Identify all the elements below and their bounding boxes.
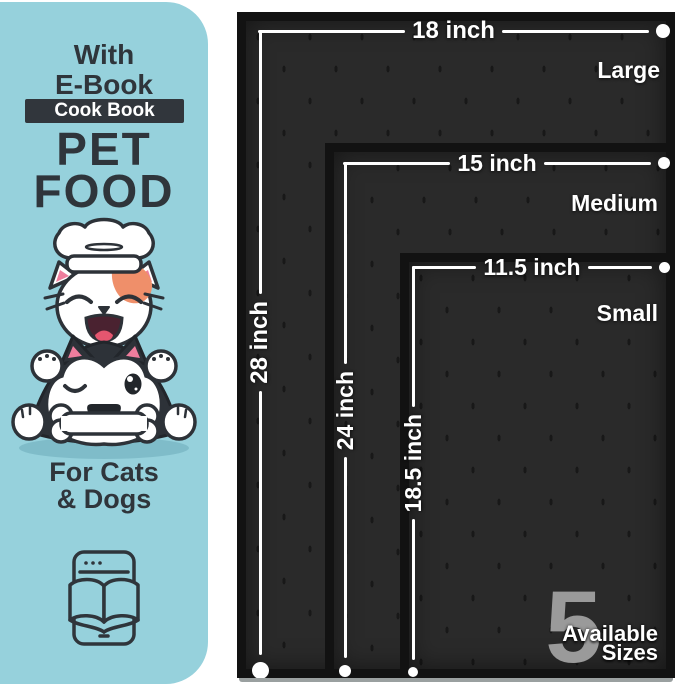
product-infographic: With E-Book Cook Book PET FOOD: [0, 0, 679, 688]
subtitle-line1: For Cats: [0, 459, 208, 486]
for-cats-dogs-text: For Cats & Dogs: [0, 459, 208, 513]
dim-height-large: 28 inch: [251, 30, 269, 679]
available-sizes-callout: 5 Available Sizes: [562, 624, 658, 662]
ebook-icon: [64, 548, 144, 648]
mat-small: 11.5 inch 18.5 inch Small 5 Available Si…: [400, 253, 675, 678]
dim-width-large: 18 inch: [258, 23, 670, 39]
size-label-medium: Medium: [571, 190, 658, 217]
ebook-eyebrow-text: With E-Book: [0, 40, 208, 100]
subtitle-line2: & Dogs: [0, 486, 208, 513]
title-line1: PET: [0, 128, 208, 170]
size-label-small: Small: [597, 300, 658, 327]
cat-chef-dog-illustration: [9, 214, 199, 464]
dim-endpoint-dot: [659, 262, 670, 273]
dim-width-medium: 15 inch: [343, 155, 670, 171]
dim-endpoint-dot: [252, 662, 269, 679]
pet-food-title: PET FOOD: [0, 128, 208, 212]
callout-word2: Sizes: [562, 643, 658, 662]
chef-hat: [55, 220, 153, 259]
dim-height-small-label: 18.5 inch: [400, 414, 427, 512]
dim-width-large-label: 18 inch: [412, 17, 495, 45]
dim-endpoint-dot: [658, 157, 670, 169]
dim-width-medium-label: 15 inch: [457, 150, 536, 177]
dim-height-small: 18.5 inch: [404, 266, 422, 677]
dim-endpoint-dot: [339, 665, 351, 677]
cookbook-badge: Cook Book: [25, 99, 184, 123]
dim-height-large-label: 28 inch: [246, 301, 274, 384]
title-line2: FOOD: [0, 170, 208, 212]
dim-endpoint-dot: [656, 24, 670, 38]
size-label-large: Large: [597, 57, 660, 84]
dim-height-medium-label: 24 inch: [332, 371, 359, 450]
dim-height-medium: 24 inch: [336, 163, 354, 677]
eyebrow-line1: With: [0, 40, 208, 70]
mat-bottom-edge: [239, 678, 673, 682]
eyebrow-line2: E-Book: [0, 70, 208, 100]
dim-endpoint-dot: [408, 667, 418, 677]
dim-width-small-label: 11.5 inch: [483, 254, 580, 281]
dim-width-small: 11.5 inch: [412, 259, 670, 275]
left-info-panel: With E-Book Cook Book PET FOOD: [0, 2, 208, 684]
